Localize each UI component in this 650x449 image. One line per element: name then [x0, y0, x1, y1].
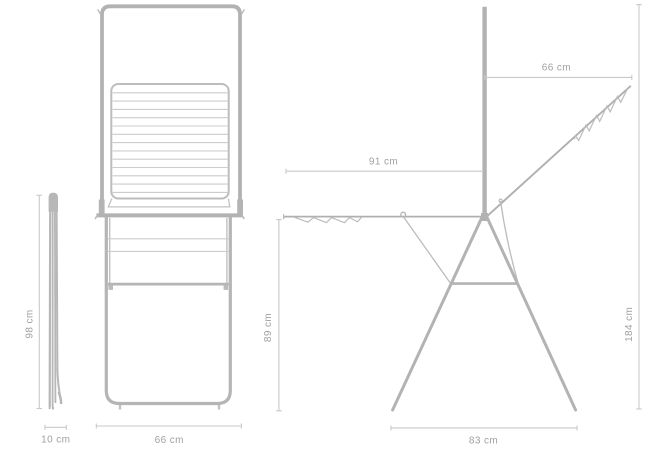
svg-text:91 cm: 91 cm	[369, 156, 398, 167]
svg-text:66 cm: 66 cm	[155, 435, 184, 446]
svg-text:83 cm: 83 cm	[469, 436, 498, 447]
svg-text:10 cm: 10 cm	[41, 435, 70, 446]
svg-text:66 cm: 66 cm	[542, 63, 571, 74]
svg-text:184 cm: 184 cm	[624, 307, 635, 342]
svg-text:98 cm: 98 cm	[25, 309, 36, 338]
svg-text:89 cm: 89 cm	[263, 313, 274, 342]
